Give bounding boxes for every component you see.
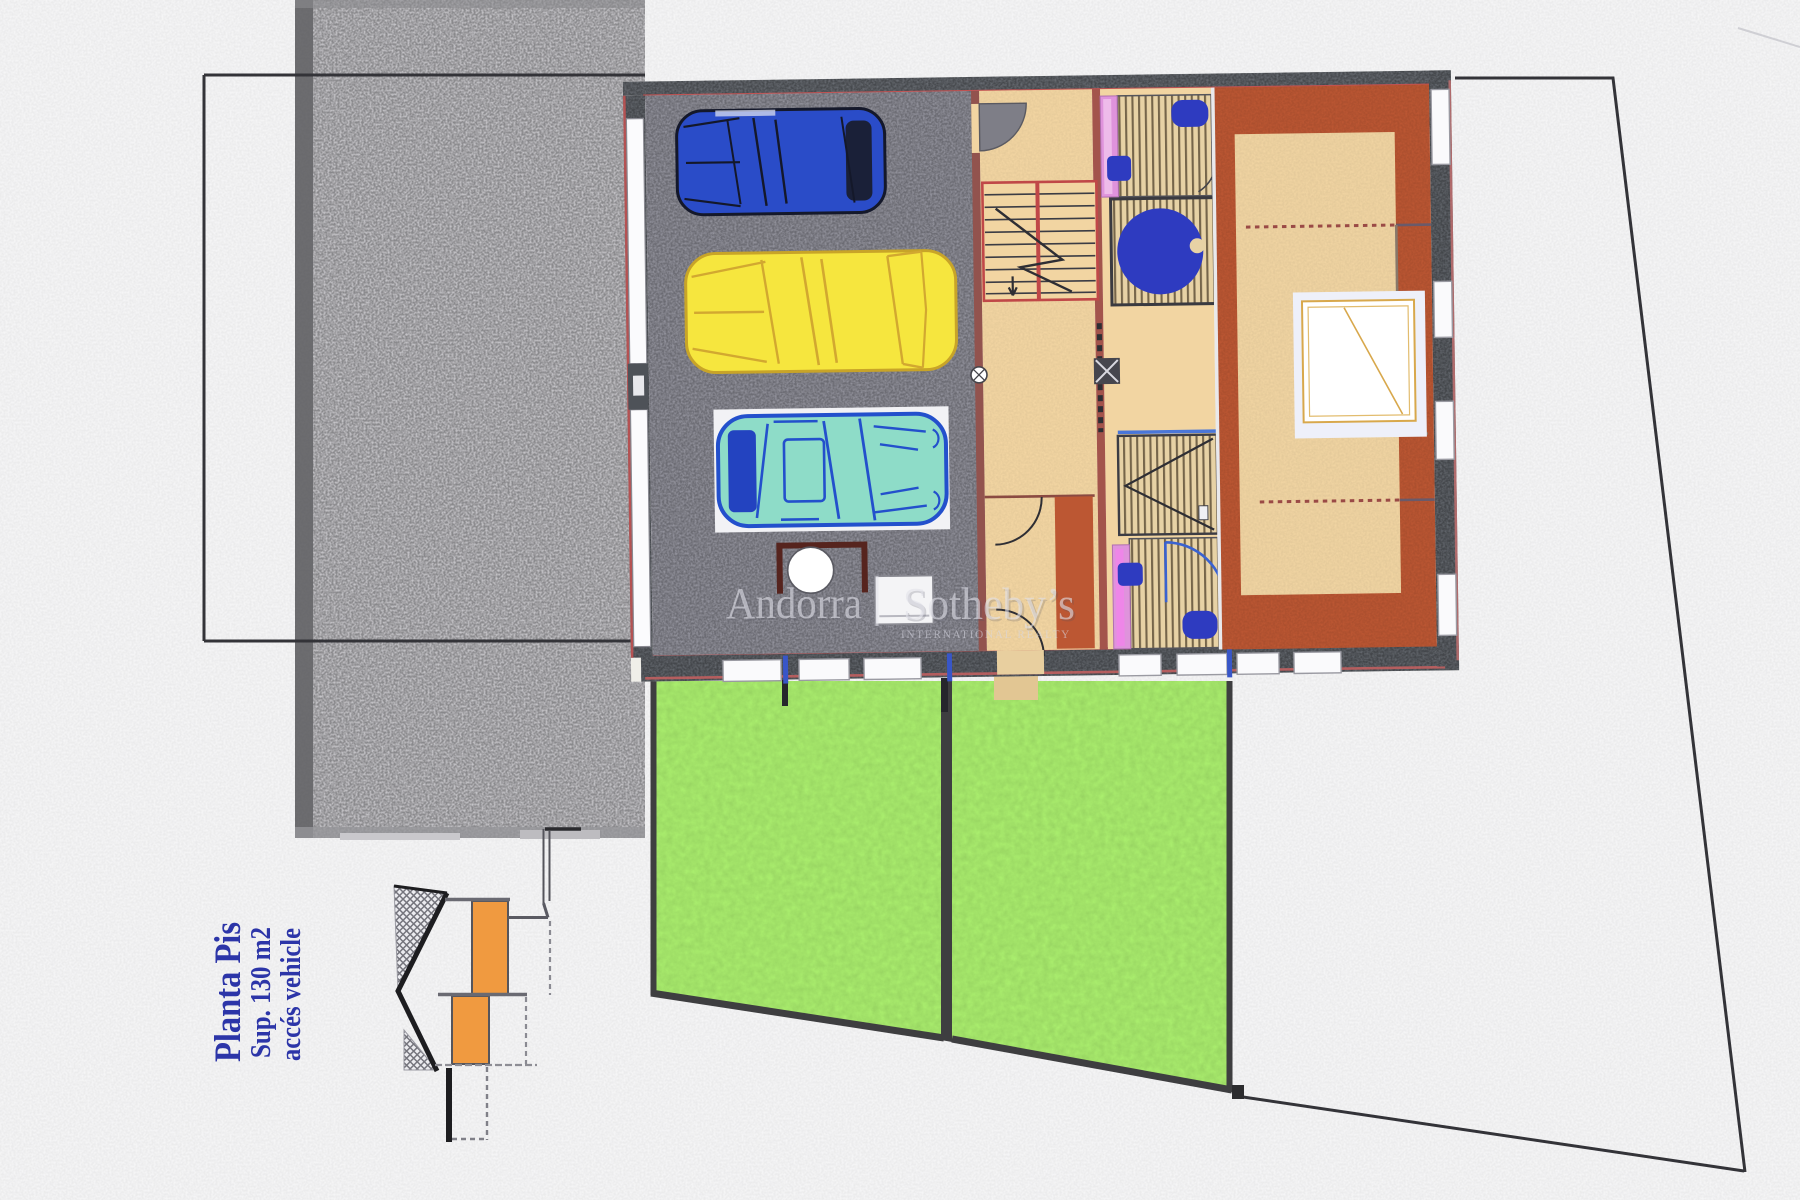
svg-text:Planta Pis: Planta Pis — [208, 922, 249, 1062]
svg-text:Andorra: Andorra — [726, 579, 862, 628]
svg-text:INTERNATIONAL REALTY: INTERNATIONAL REALTY — [901, 629, 1071, 641]
svg-text:Sotheby’s: Sotheby’s — [903, 579, 1075, 629]
svg-text:accés vehicle: accés vehicle — [276, 928, 307, 1061]
svg-text:Sup. 130 m2: Sup. 130 m2 — [246, 927, 277, 1058]
